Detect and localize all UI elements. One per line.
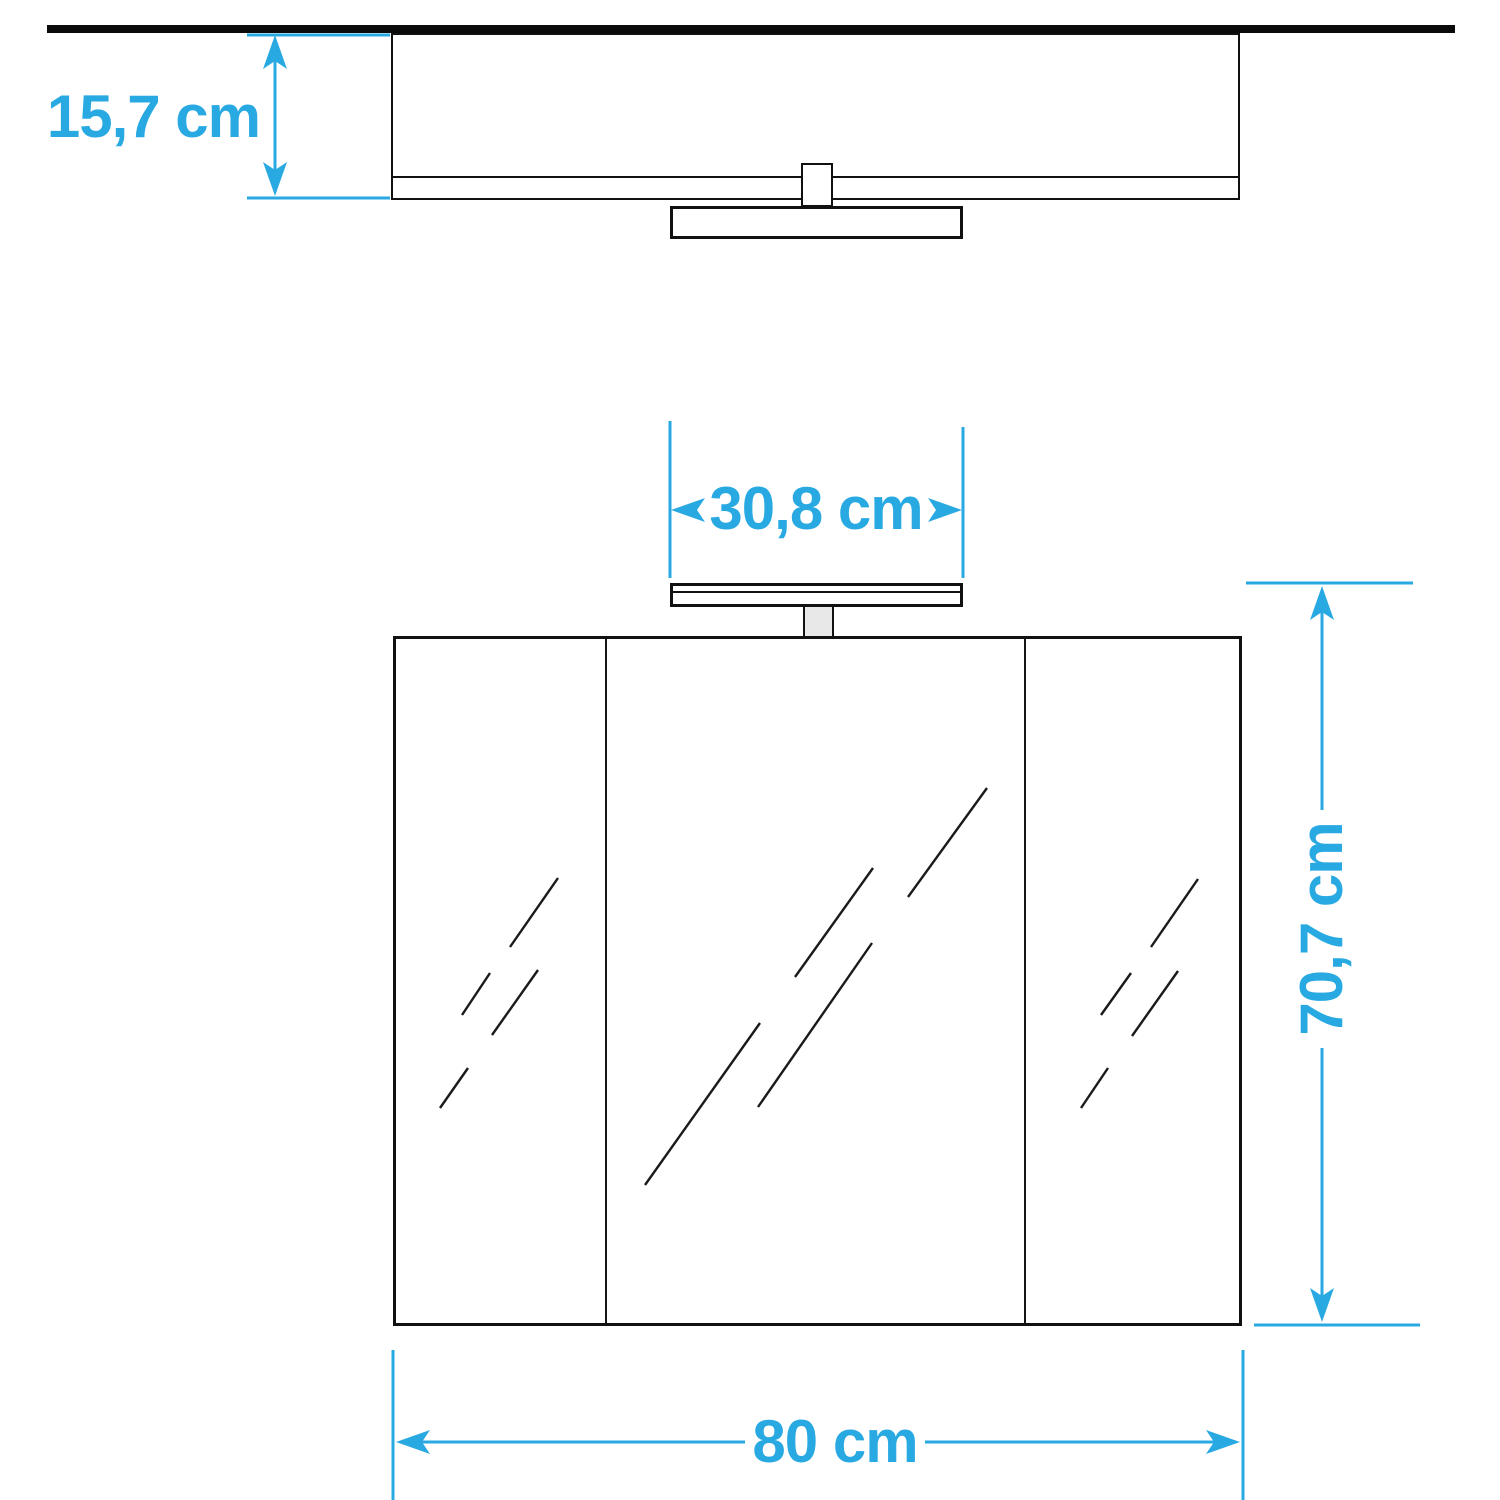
cabinet-top-view-body — [391, 33, 1240, 178]
door-divider-right — [1024, 639, 1026, 1323]
dimension-width-label: 80 cm — [735, 1409, 935, 1475]
lamp-top-view-head — [670, 206, 963, 239]
dimension-lamp-width-label: 30,8 cm — [696, 476, 936, 542]
door-divider-left — [605, 639, 607, 1323]
lamp-front-head — [670, 583, 963, 607]
dimension-depth-label: 15,7 cm — [30, 84, 260, 150]
dimension-height-label: 70,7 cm — [1289, 809, 1355, 1049]
lamp-top-view-stem — [801, 163, 833, 207]
cabinet-front-view — [393, 636, 1242, 1326]
dimension-depth-lines — [247, 35, 390, 198]
ceiling-line — [47, 25, 1455, 33]
dimension-diagram: 15,7 cm 30,8 cm 70,7 cm 80 cm — [0, 0, 1500, 1500]
lamp-front-stem — [803, 605, 834, 638]
